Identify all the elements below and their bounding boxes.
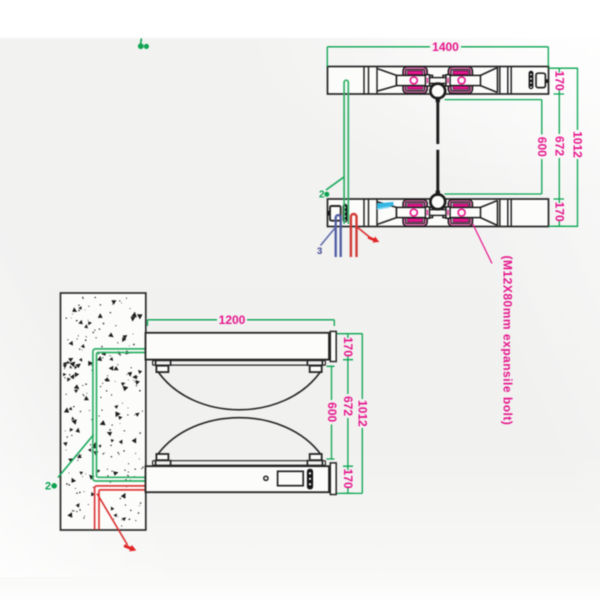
svg-text:170: 170 [341, 469, 355, 489]
svg-text:2: 2 [45, 481, 51, 493]
svg-text:1012: 1012 [571, 131, 585, 158]
svg-text:(M12X80mm expansile bolt): (M12X80mm expansile bolt) [501, 256, 515, 426]
svg-text:3: 3 [317, 246, 322, 257]
svg-text:1200: 1200 [219, 313, 246, 327]
svg-text:170: 170 [553, 202, 567, 222]
svg-text:170: 170 [341, 337, 355, 357]
svg-text:600: 600 [535, 137, 549, 157]
svg-text:2: 2 [319, 190, 325, 201]
svg-text:672: 672 [553, 136, 567, 156]
svg-text:600: 600 [325, 402, 339, 422]
svg-text:170: 170 [553, 71, 567, 91]
svg-text:1012: 1012 [356, 400, 370, 427]
svg-text:1400: 1400 [432, 40, 459, 54]
svg-text:672: 672 [341, 396, 355, 416]
